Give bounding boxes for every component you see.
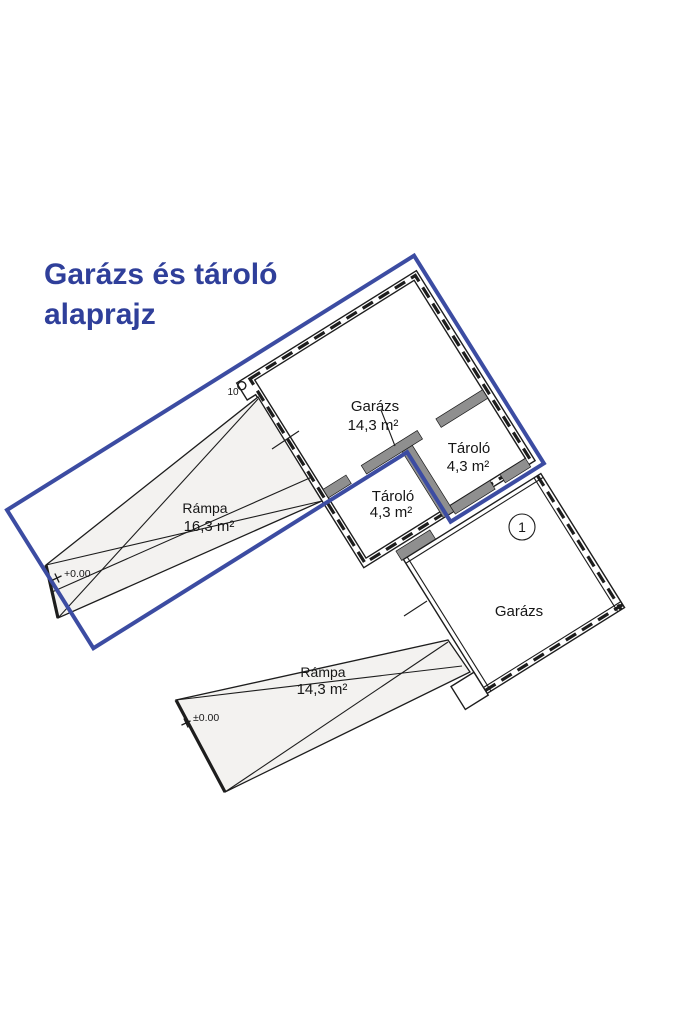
ramp-lower-area: 14,3 m² [297, 681, 348, 698]
ramp-upper-area: 16,3 m² [184, 518, 235, 535]
floorplan-svg: 1 Garázs 14,3 m² Tároló 4,3 m² Tároló 4,… [0, 0, 682, 1024]
storage-right-label: Tároló [448, 440, 491, 457]
garage-lower-label: Garázs [495, 603, 543, 620]
storage-left-label: Tároló [372, 488, 415, 505]
dimension-tick [404, 601, 427, 616]
garage-upper-area: 14,3 m² [348, 417, 399, 434]
level-mark-upper: +0.00 [64, 568, 91, 580]
lower-ramp-outline [176, 640, 470, 792]
storage-right-area: 4,3 m² [447, 458, 490, 475]
wall-dimension-label: 10 [227, 387, 239, 398]
ramp-lower-label: Rámpa [300, 664, 345, 680]
floorplan-image: Garázs és tároló alaprajz [0, 0, 682, 1024]
unit-number: 1 [518, 519, 526, 535]
ramp-upper-label: Rámpa [182, 500, 227, 516]
storage-left-area: 4,3 m² [370, 504, 413, 521]
level-mark-lower: ±0.00 [193, 712, 219, 724]
garage-upper-label: Garázs [351, 398, 399, 415]
